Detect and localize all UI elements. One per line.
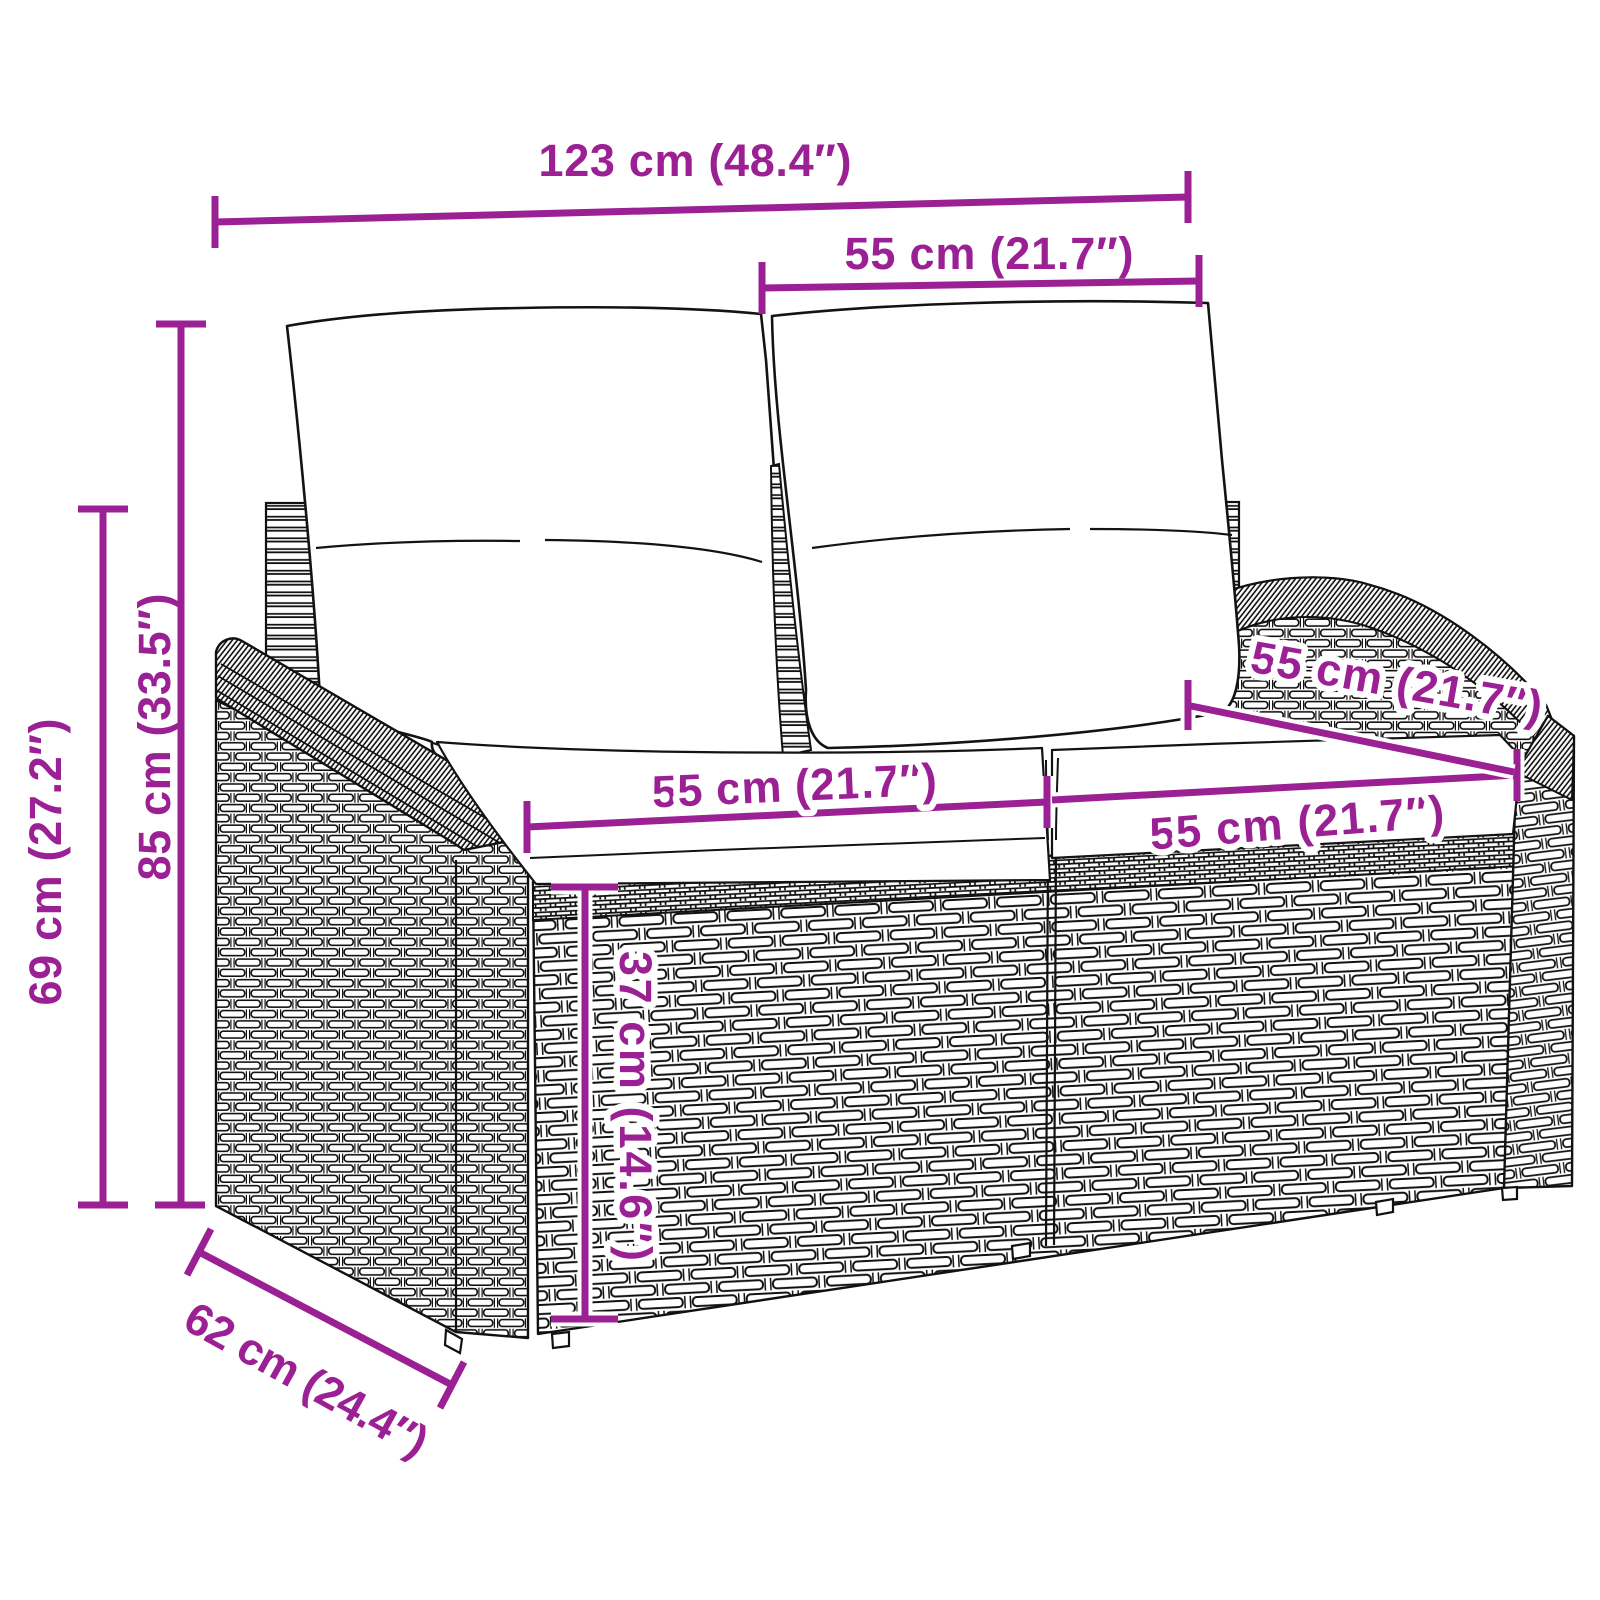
svg-text:37 cm (14.6″): 37 cm (14.6″) (610, 951, 661, 1261)
svg-text:55 cm (21.7″): 55 cm (21.7″) (845, 228, 1134, 279)
svg-text:85 cm (33.5″): 85 cm (33.5″) (129, 594, 180, 881)
svg-text:123 cm (48.4″): 123 cm (48.4″) (539, 135, 852, 186)
svg-text:69 cm (27.2″): 69 cm (27.2″) (20, 719, 71, 1006)
